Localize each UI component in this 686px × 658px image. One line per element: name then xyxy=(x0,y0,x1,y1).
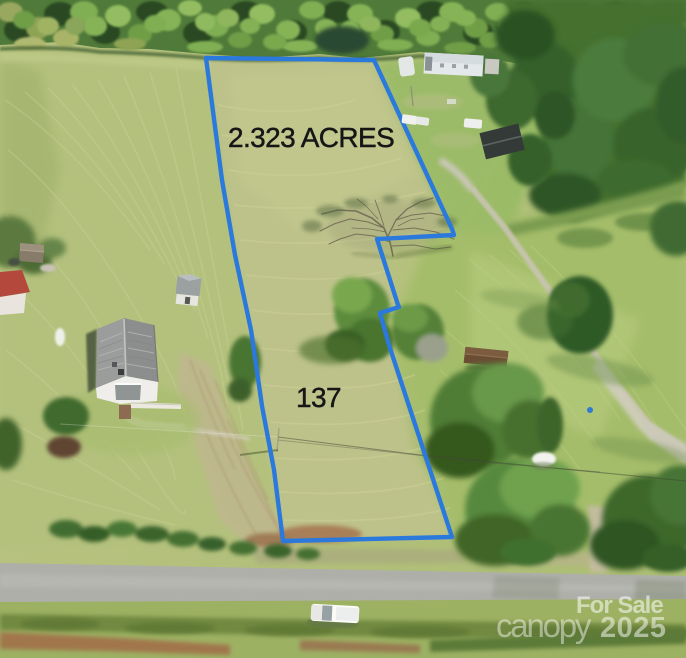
svg-text:137: 137 xyxy=(296,382,341,413)
svg-text:2025: 2025 xyxy=(600,612,667,644)
svg-text:2.323 ACRES: 2.323 ACRES xyxy=(228,122,394,153)
svg-text:canopy: canopy xyxy=(496,607,592,644)
